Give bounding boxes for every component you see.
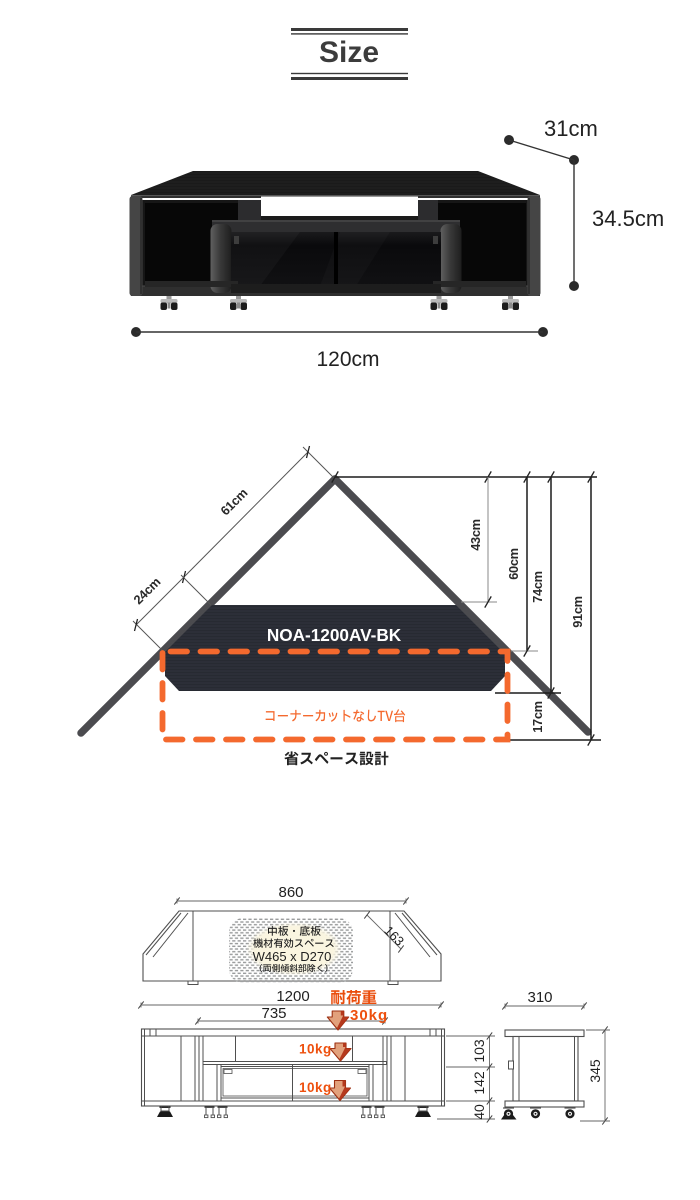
svg-text:142: 142: [471, 1071, 487, 1095]
svg-text:310: 310: [527, 989, 552, 1006]
svg-text:120cm: 120cm: [316, 348, 379, 371]
svg-text:91cm: 91cm: [570, 596, 585, 628]
svg-text:60cm: 60cm: [506, 548, 521, 580]
svg-text:1200: 1200: [276, 988, 309, 1005]
svg-text:40: 40: [471, 1104, 487, 1120]
svg-text:NOA-1200AV-BK: NOA-1200AV-BK: [267, 625, 402, 645]
svg-text:10kg: 10kg: [299, 1080, 332, 1095]
svg-text:W465 x D270: W465 x D270: [253, 949, 332, 964]
svg-text:Size: Size: [319, 36, 379, 69]
svg-text:74cm: 74cm: [530, 571, 545, 603]
svg-text:31cm: 31cm: [544, 116, 598, 141]
svg-text:30kg: 30kg: [350, 1007, 388, 1024]
svg-text:103: 103: [471, 1039, 487, 1063]
svg-text:860: 860: [278, 884, 303, 901]
svg-text:10kg: 10kg: [299, 1042, 332, 1057]
svg-text:735: 735: [261, 1005, 286, 1022]
svg-text:17cm: 17cm: [530, 701, 545, 733]
svg-text:34.5cm: 34.5cm: [592, 206, 664, 231]
svg-text:43cm: 43cm: [468, 519, 483, 551]
svg-text:345: 345: [587, 1059, 603, 1083]
